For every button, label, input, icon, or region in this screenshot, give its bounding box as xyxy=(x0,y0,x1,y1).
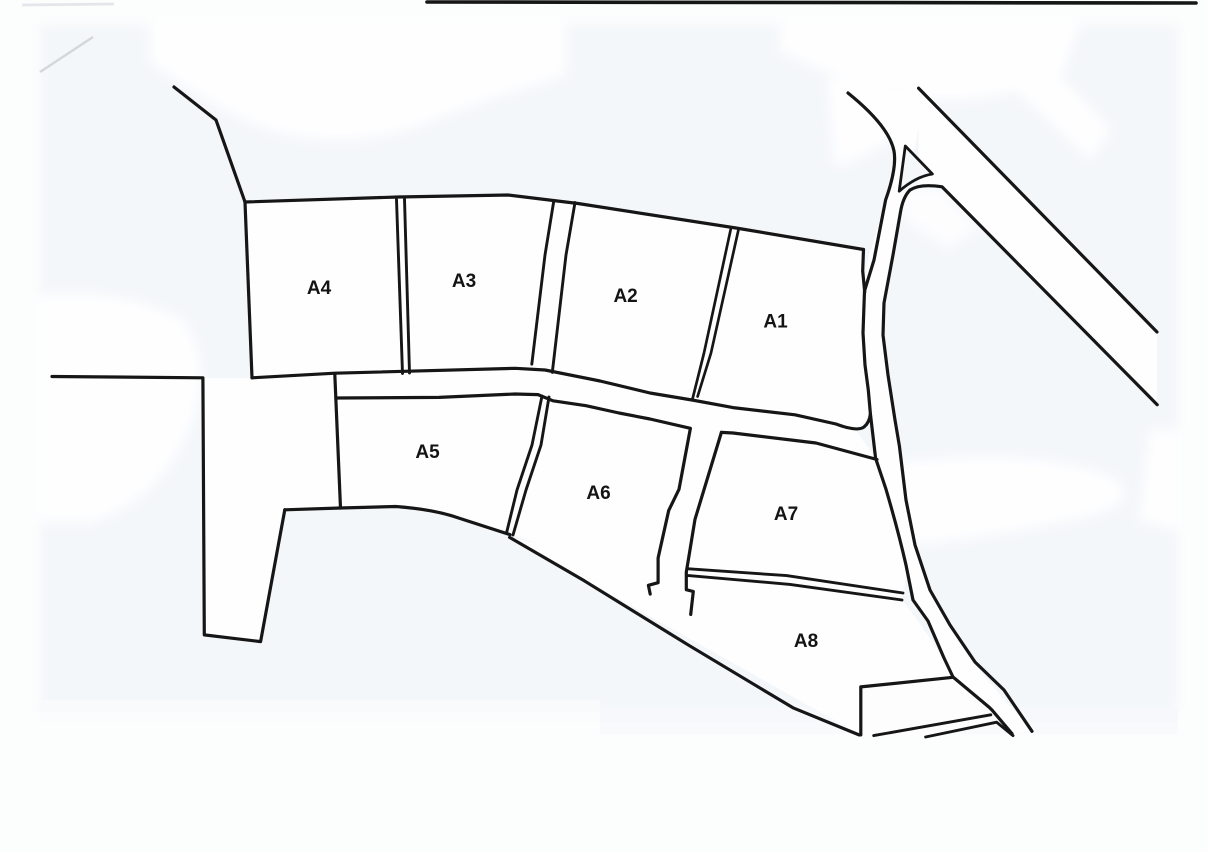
svg-text:A5: A5 xyxy=(415,442,440,463)
svg-text:A8: A8 xyxy=(794,631,818,652)
svg-text:A1: A1 xyxy=(763,312,788,333)
svg-text:A4: A4 xyxy=(307,278,332,299)
svg-text:A3: A3 xyxy=(452,271,476,292)
svg-text:A2: A2 xyxy=(613,286,637,307)
svg-text:A6: A6 xyxy=(586,483,610,504)
svg-text:A7: A7 xyxy=(774,504,798,525)
